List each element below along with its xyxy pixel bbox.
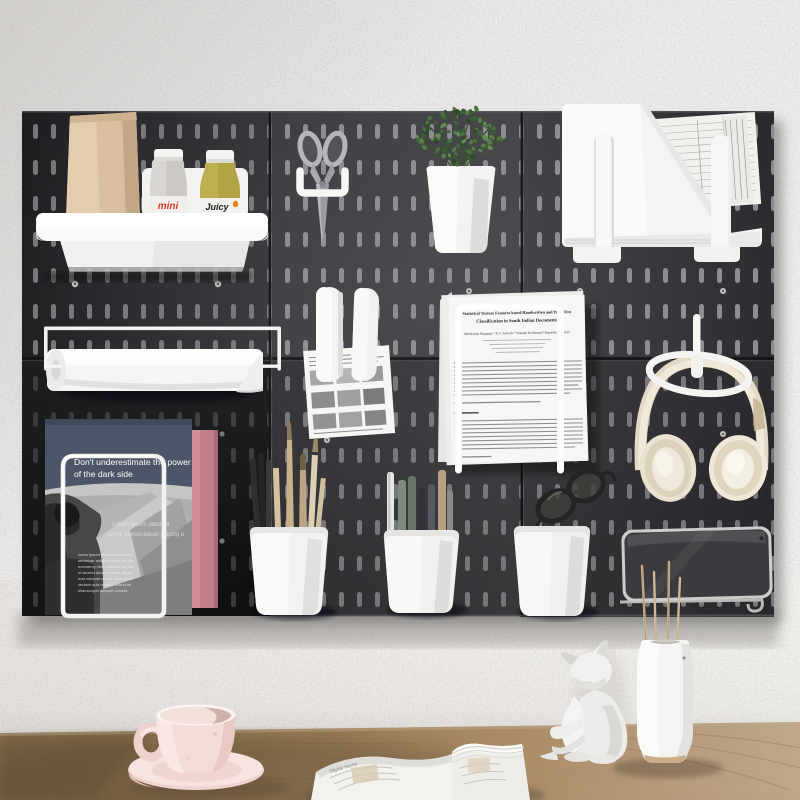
svg-text:erat volutpat ut wisi enim ad: erat volutpat ut wisi enim ad m — [78, 576, 133, 581]
svg-text:nonummy nibh euismod tincidu: nonummy nibh euismod tincidu — [78, 564, 133, 569]
svg-text:ut laoreet dolore magna aliqua: ut laoreet dolore magna aliqua — [78, 570, 133, 575]
svg-text:Juicy: Juicy — [205, 202, 229, 212]
svg-text:amet, consectetuer piscing e: amet, consectetuer piscing e — [108, 532, 185, 538]
svg-text:lorem ipsum dolor sit amet con: lorem ipsum dolor sit amet con — [78, 552, 132, 557]
svg-text:Lorem ipsum dolor sit: Lorem ipsum dolor sit — [112, 522, 170, 528]
svg-text:sectetuer adipiscing elit sed: sectetuer adipiscing elit sed dia — [78, 558, 134, 563]
svg-text:veniam quis nostrud exerci tat: veniam quis nostrud exerci tat — [78, 582, 132, 587]
svg-text:of the dark side: of the dark side — [74, 469, 133, 479]
svg-text:Don't underestimate the power: Don't underestimate the power — [74, 457, 191, 467]
svg-text:mini: mini — [158, 201, 179, 212]
svg-text:ullamcorper suscipit lobortis: ullamcorper suscipit lobortis — [78, 588, 127, 593]
